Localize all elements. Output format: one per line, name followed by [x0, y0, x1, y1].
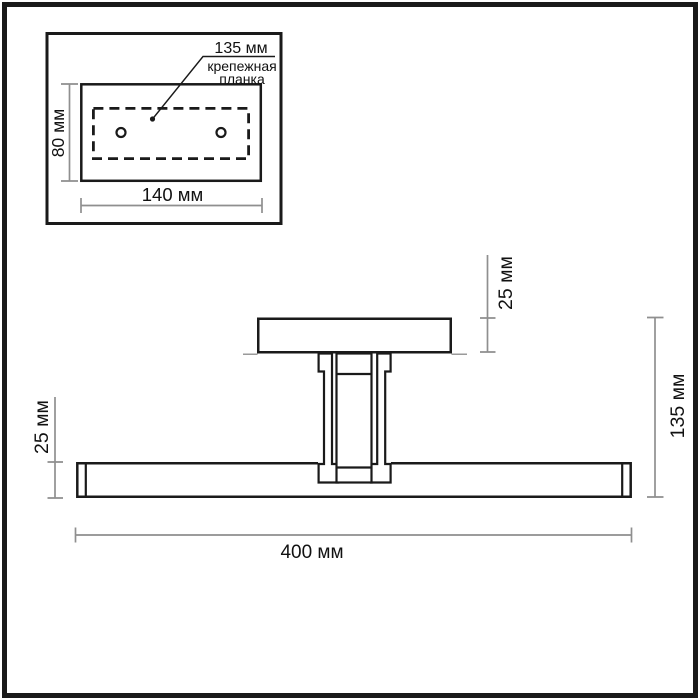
dimension-overall-height: 135 мм — [647, 318, 689, 498]
mounting-plate-outline — [81, 84, 260, 181]
technical-drawing-page: 135 мм крепежная планка 80 мм 140 мм — [0, 0, 700, 700]
bar-height-label: 25 мм — [31, 400, 53, 454]
dimension-line-400 — [76, 528, 632, 543]
canopy — [258, 319, 451, 353]
fixture-dimension-drawing: 135 мм крепежная планка 80 мм 140 мм — [0, 0, 700, 700]
overall-height-label: 135 мм — [667, 374, 689, 439]
dimension-canopy-height: 25 мм — [480, 255, 517, 352]
overall-width-label: 400 мм — [280, 542, 343, 563]
stem-center-column — [337, 354, 372, 483]
dimension-overall-width: 400 мм — [76, 528, 632, 564]
stem-right-arm — [371, 354, 391, 483]
fixture-side-view: 25 мм 25 мм 135 мм 400 мм — [31, 255, 689, 563]
stem-left-arm — [319, 354, 339, 483]
mounting-plate-caption-line2: планка — [219, 71, 265, 87]
plate-height-label: 80 мм — [48, 109, 68, 157]
mounting-stem — [319, 354, 391, 483]
mounting-plate-inset: 135 мм крепежная планка 80 мм 140 мм — [47, 34, 281, 224]
screw-hole-right — [217, 128, 226, 137]
dimension-line-135 — [647, 318, 664, 498]
canopy-height-label: 25 мм — [495, 256, 517, 310]
dimension-line-canopy-25 — [480, 255, 496, 352]
screw-hole-left — [117, 128, 126, 137]
dimension-bar-height: 25 мм — [31, 397, 63, 498]
plate-holes-spacing-label: 135 мм — [214, 40, 267, 57]
plate-width-label: 140 мм — [142, 184, 203, 205]
